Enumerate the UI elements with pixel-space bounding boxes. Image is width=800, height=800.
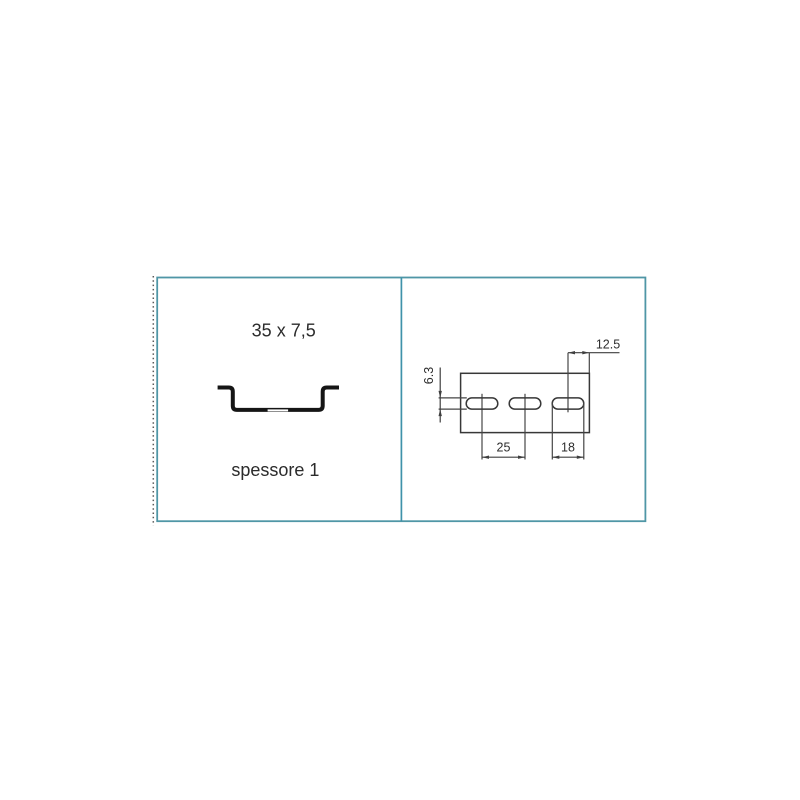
svg-text:6.3: 6.3 [422, 367, 436, 384]
svg-text:18: 18 [561, 441, 575, 455]
svg-text:25: 25 [497, 441, 511, 455]
svg-text:12.5: 12.5 [596, 337, 620, 351]
svg-text:spessore 1: spessore 1 [231, 460, 319, 480]
svg-text:35 x 7,5: 35 x 7,5 [252, 321, 316, 341]
